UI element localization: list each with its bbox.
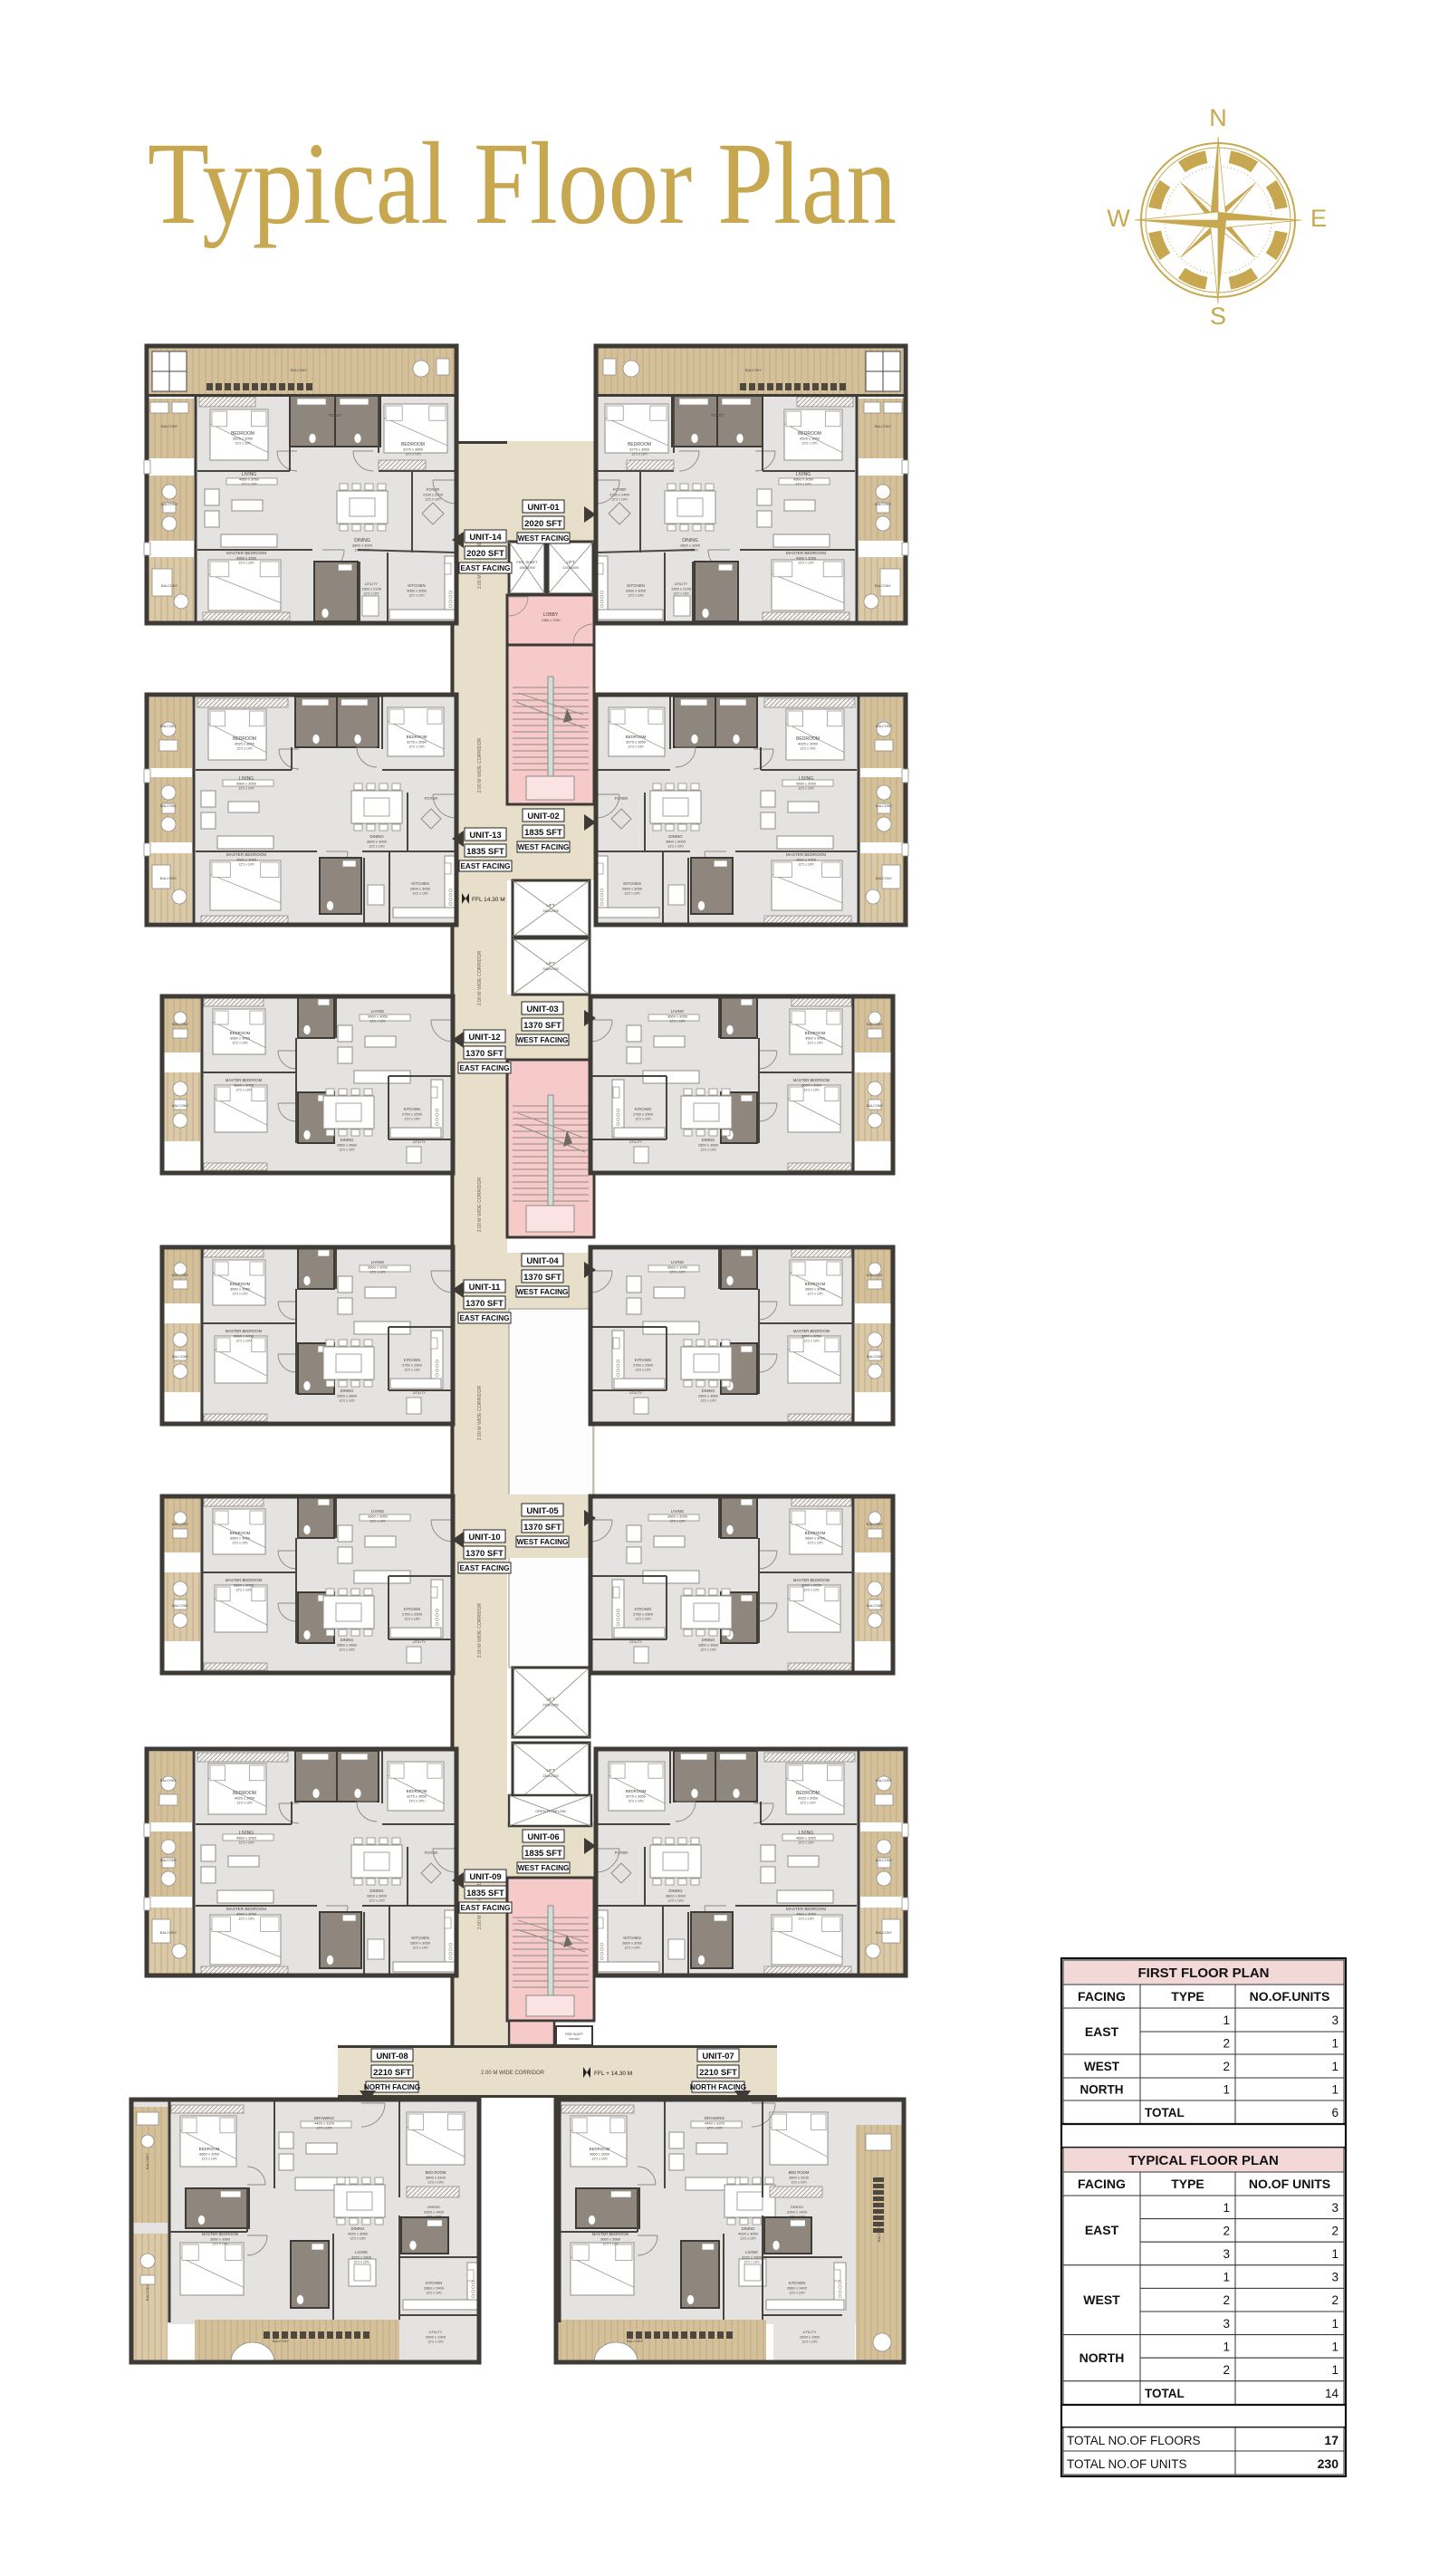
svg-text:TYPE: TYPE — [1171, 2177, 1204, 2191]
svg-text:12′2 x 10′0: 12′2 x 10′0 — [369, 1271, 385, 1274]
svg-text:12′2 x 10′0: 12′2 x 10′0 — [363, 592, 379, 596]
svg-text:KITCHEN: KITCHEN — [635, 1358, 651, 1362]
svg-text:UNIT-08: UNIT-08 — [376, 2052, 408, 2062]
svg-text:BALCONY: BALCONY — [160, 1859, 178, 1862]
svg-text:Typical Floor Plan: Typical Floor Plan — [148, 119, 897, 249]
svg-text:W: W — [1107, 205, 1130, 232]
svg-text:KITCHEN: KITCHEN — [404, 1358, 420, 1362]
svg-text:BEDROOM: BEDROOM — [407, 1789, 427, 1793]
svg-text:N: N — [1209, 104, 1227, 131]
svg-text:2190 x 2400: 2190 x 2400 — [423, 493, 444, 497]
svg-text:4025 x 3050: 4025 x 3050 — [235, 742, 255, 746]
svg-text:2300x2300: 2300x2300 — [542, 1704, 558, 1707]
svg-text:BEDROOM: BEDROOM — [230, 1531, 251, 1535]
svg-text:LIFT: LIFT — [566, 560, 575, 564]
svg-text:3220 x 2600: 3220 x 2600 — [351, 2255, 372, 2260]
svg-text:12′2 x 10′0: 12′2 x 10′0 — [744, 2261, 759, 2264]
svg-text:2020 SFT: 2020 SFT — [524, 519, 562, 529]
svg-text:FOYER: FOYER — [615, 1850, 628, 1855]
svg-text:4025 x 3050: 4025 x 3050 — [235, 1796, 255, 1801]
svg-text:12′2 x 10′0: 12′2 x 10′0 — [232, 1542, 247, 1545]
svg-text:12′2 x 10′0: 12′2 x 10′0 — [232, 1293, 247, 1296]
svg-text:BALCONY: BALCONY — [146, 2283, 149, 2301]
svg-text:LIFT: LIFT — [546, 961, 555, 966]
svg-text:12′2 x 10′0: 12′2 x 10′0 — [803, 1340, 819, 1343]
svg-text:BALCONY: BALCONY — [161, 425, 178, 428]
svg-text:WEST FACING: WEST FACING — [518, 843, 570, 851]
svg-text:12′2 x 10′0: 12′2 x 10′0 — [353, 2261, 369, 2264]
svg-text:1835 SFT: 1835 SFT — [466, 847, 504, 857]
svg-text:12′2 x 10′0: 12′2 x 10′0 — [591, 2158, 607, 2161]
svg-text:UNIT-14: UNIT-14 — [469, 533, 502, 543]
svg-text:12′2 x 10′0: 12′2 x 10′0 — [201, 2158, 216, 2161]
svg-text:12′2 x 10′0: 12′2 x 10′0 — [238, 863, 254, 867]
svg-text:12′2 x 10′0: 12′2 x 10′0 — [667, 1899, 683, 1903]
svg-text:3660 x 3050: 3660 x 3050 — [667, 1014, 688, 1019]
svg-text:MASTER BEDROOM: MASTER BEDROOM — [793, 1578, 830, 1582]
svg-text:12′2 x 10′0: 12′2 x 10′0 — [631, 453, 647, 457]
svg-text:12′2 x 10′0: 12′2 x 10′0 — [667, 845, 683, 849]
svg-text:4660 x 3050: 4660 x 3050 — [796, 1912, 817, 1917]
svg-text:KITCHEN: KITCHEN — [635, 1107, 651, 1111]
svg-text:UTILITY: UTILITY — [629, 1640, 643, 1644]
svg-text:4660 x 3050: 4660 x 3050 — [793, 477, 814, 482]
svg-text:MASTER BEDROOM: MASTER BEDROOM — [226, 852, 266, 857]
svg-text:FOYER: FOYER — [615, 796, 628, 801]
svg-text:BALCONY: BALCONY — [172, 1355, 189, 1359]
svg-text:KITCHEN: KITCHEN — [789, 2281, 805, 2285]
svg-text:NORTH FACING: NORTH FACING — [364, 2083, 420, 2091]
svg-text:12′2 x 10′0: 12′2 x 10′0 — [801, 2341, 817, 2344]
svg-text:MASTER BEDROOM: MASTER BEDROOM — [786, 551, 826, 555]
svg-text:12′2 x 10′0: 12′2 x 10′0 — [800, 1802, 815, 1805]
svg-text:12′2 x 10′0: 12′2 x 10′0 — [235, 1089, 251, 1092]
svg-text:2800 x 3050: 2800 x 3050 — [410, 1941, 431, 1946]
svg-text:1300 x 2145: 1300 x 2145 — [361, 587, 382, 591]
svg-text:3800 x 3000: 3800 x 3000 — [666, 1894, 686, 1898]
svg-text:UTILITY: UTILITY — [413, 1391, 427, 1395]
svg-text:12′2 x 10′0: 12′2 x 10′0 — [798, 1841, 813, 1845]
svg-text:12′2 x 10′0: 12′2 x 10′0 — [404, 1618, 419, 1621]
svg-text:OPEN TO BELOW: OPEN TO BELOW — [535, 1809, 566, 1813]
svg-text:3660 x 3050: 3660 x 3050 — [234, 1334, 254, 1339]
svg-text:2750 x 2500: 2750 x 2500 — [402, 1612, 423, 1617]
svg-text:WEST FACING: WEST FACING — [518, 534, 570, 543]
svg-text:12′2 x 10′0: 12′2 x 10′0 — [404, 1118, 419, 1121]
svg-text:4660 x 3050: 4660 x 3050 — [796, 1836, 817, 1841]
svg-text:4660 x 3050: 4660 x 3050 — [236, 858, 257, 862]
svg-text:12′2 x 10′0: 12′2 x 10′0 — [700, 1399, 715, 1403]
svg-text:12′2 x 10′0: 12′2 x 10′0 — [635, 1618, 650, 1621]
svg-text:12′2 x 10′0: 12′2 x 10′0 — [628, 1800, 643, 1803]
svg-text:BALCONY: BALCONY — [867, 1523, 884, 1526]
svg-text:2300 x 1400: 2300 x 1400 — [787, 2210, 808, 2215]
svg-text:UTILITY: UTILITY — [413, 1640, 427, 1644]
svg-text:UTILITY: UTILITY — [429, 2330, 443, 2334]
svg-text:FOYER: FOYER — [425, 1850, 437, 1855]
svg-text:BEDROOM: BEDROOM — [626, 1789, 647, 1793]
svg-text:BALCONY: BALCONY — [172, 1023, 189, 1026]
svg-text:12′2 x 10′0: 12′2 x 10′0 — [369, 1899, 384, 1903]
svg-text:4460 x 3200: 4460 x 3200 — [314, 2121, 335, 2126]
svg-text:3660 x 3050: 3660 x 3050 — [368, 1265, 389, 1270]
svg-text:BALCONY: BALCONY — [875, 425, 892, 428]
svg-text:2800 x 3050: 2800 x 3050 — [410, 887, 431, 891]
svg-text:DRESS: DRESS — [427, 2205, 440, 2209]
svg-text:17: 17 — [1324, 2433, 1339, 2447]
svg-text:1: 1 — [1331, 2317, 1339, 2331]
svg-text:BALCONY: BALCONY — [172, 1604, 189, 1608]
svg-text:12′2 x 10′0: 12′2 x 10′0 — [807, 1293, 822, 1296]
svg-text:WEST: WEST — [1084, 2060, 1120, 2073]
svg-text:BALCONY: BALCONY — [876, 1779, 893, 1783]
svg-text:3800 x 3000: 3800 x 3000 — [680, 543, 701, 548]
svg-text:12′2 x 10′0: 12′2 x 10′0 — [235, 1589, 251, 1592]
svg-text:WEST FACING: WEST FACING — [517, 1538, 569, 1546]
svg-text:FFL + 14.30 M: FFL + 14.30 M — [594, 2071, 632, 2077]
svg-text:12′2 x 10′0: 12′2 x 10′0 — [232, 1042, 247, 1045]
svg-text:12′2 x 10′0: 12′2 x 10′0 — [669, 1271, 685, 1274]
svg-text:12′2 x 10′0: 12′2 x 10′0 — [238, 1918, 254, 1921]
svg-text:12′2 x 10′0: 12′2 x 10′0 — [339, 1648, 354, 1652]
svg-text:12′2 x 10′0: 12′2 x 10′0 — [369, 1020, 385, 1024]
svg-text:KITCHEN: KITCHEN — [411, 881, 428, 886]
svg-text:MASTER BEDROOM: MASTER BEDROOM — [786, 852, 826, 857]
svg-text:1: 1 — [1331, 2083, 1339, 2097]
svg-text:4525 x 3050: 4525 x 3050 — [800, 437, 820, 441]
svg-text:12′2 x 10′0: 12′2 x 10′0 — [807, 1542, 822, 1545]
svg-text:3060 x 3050: 3060 x 3050 — [407, 589, 427, 593]
svg-text:3660 x 3050: 3660 x 3050 — [801, 1083, 822, 1088]
svg-text:2210 SFT: 2210 SFT — [373, 2068, 411, 2078]
svg-text:TOILET: TOILET — [711, 413, 724, 418]
svg-text:2: 2 — [1223, 2037, 1230, 2051]
svg-text:12′2 x 10′0: 12′2 x 10′0 — [706, 2127, 722, 2130]
svg-text:12′2 x 10′0: 12′2 x 10′0 — [212, 2243, 227, 2246]
svg-text:BED ROOM: BED ROOM — [789, 2170, 810, 2175]
svg-text:1: 1 — [1223, 2014, 1230, 2027]
svg-text:2.00 M WIDE CORRIDOR: 2.00 M WIDE CORRIDOR — [481, 2071, 545, 2076]
svg-text:2020 SFT: 2020 SFT — [466, 549, 504, 559]
svg-text:3600 x 3100: 3600 x 3100 — [426, 2176, 446, 2180]
svg-text:UNIT-10: UNIT-10 — [468, 1533, 500, 1543]
svg-text:WEST: WEST — [1083, 2292, 1120, 2307]
svg-text:BALCONY: BALCONY — [875, 584, 892, 588]
svg-text:1370 SFT: 1370 SFT — [465, 1549, 504, 1559]
svg-text:UTILITY: UTILITY — [803, 2330, 817, 2334]
svg-text:12′2 x 10′0: 12′2 x 10′0 — [602, 2243, 618, 2246]
svg-text:3800 x 3000: 3800 x 3000 — [367, 1894, 388, 1898]
svg-text:2600 x 1900: 2600 x 1900 — [426, 2335, 446, 2340]
svg-text:2850 x 3660: 2850 x 3660 — [698, 1143, 719, 1148]
svg-text:12′2 x 10′0: 12′2 x 10′0 — [427, 2181, 443, 2185]
svg-text:UTILITY: UTILITY — [365, 582, 379, 586]
svg-text:230: 230 — [1318, 2456, 1339, 2471]
svg-text:MASTER BEDROOM: MASTER BEDROOM — [793, 1329, 830, 1333]
svg-text:BEDROOM: BEDROOM — [805, 1282, 826, 1286]
svg-text:12′2 x 10′0: 12′2 x 10′0 — [412, 892, 427, 896]
svg-text:LIVING: LIVING — [371, 1509, 385, 1514]
svg-text:BALCONY: BALCONY — [172, 1274, 189, 1277]
svg-text:12′2 x 10′0: 12′2 x 10′0 — [791, 2181, 806, 2185]
svg-text:12′2 x 10′0: 12′2 x 10′0 — [800, 747, 815, 751]
svg-text:BEDROOM: BEDROOM — [626, 735, 647, 739]
svg-text:NO.OF UNITS: NO.OF UNITS — [1249, 2177, 1330, 2191]
svg-text:4025 x 3050: 4025 x 3050 — [798, 1796, 819, 1801]
svg-text:3275 x 3650: 3275 x 3650 — [407, 740, 427, 745]
svg-text:1: 1 — [1223, 2083, 1230, 2097]
svg-text:FFL 14.30 M: FFL 14.30 M — [472, 897, 505, 903]
svg-text:2: 2 — [1331, 2293, 1339, 2307]
svg-text:4660 x 3050: 4660 x 3050 — [236, 1912, 257, 1917]
svg-text:4960 x 3050: 4960 x 3050 — [236, 556, 257, 561]
svg-text:UNIT-04: UNIT-04 — [526, 1256, 559, 1266]
svg-text:WEST FACING: WEST FACING — [517, 1288, 569, 1296]
svg-text:FOYER: FOYER — [427, 487, 439, 492]
svg-text:12′2 x 10′0: 12′2 x 10′0 — [408, 1800, 424, 1803]
svg-text:BALCONY: BALCONY — [172, 1523, 189, 1526]
svg-text:12′2 x 10′0: 12′2 x 10′0 — [235, 442, 250, 446]
svg-text:BALCONY: BALCONY — [876, 804, 893, 808]
svg-text:2: 2 — [1331, 2224, 1339, 2237]
svg-text:UTILITY: UTILITY — [675, 582, 688, 586]
svg-text:BALCONY: BALCONY — [867, 1274, 884, 1277]
svg-text:BALCONY: BALCONY — [160, 877, 178, 880]
svg-text:12′2 x 10′0: 12′2 x 10′0 — [339, 1399, 354, 1403]
svg-text:1300 x 2145: 1300 x 2145 — [671, 587, 692, 591]
svg-text:2860 x 2400: 2860 x 2400 — [424, 2286, 445, 2291]
svg-text:4960 x 3050: 4960 x 3050 — [796, 556, 817, 561]
svg-text:MASTER BEDROOM: MASTER BEDROOM — [793, 1078, 830, 1082]
svg-text:2300x2300: 2300x2300 — [542, 967, 558, 971]
svg-text:12′2 x 10′0: 12′2 x 10′0 — [798, 562, 813, 565]
svg-text:FACING: FACING — [1078, 2177, 1126, 2191]
svg-text:3: 3 — [1223, 2247, 1230, 2261]
svg-text:12′2 x 10′0: 12′2 x 10′0 — [624, 892, 639, 896]
svg-text:WEST FACING: WEST FACING — [518, 1864, 570, 1872]
svg-text:3660 x 3660: 3660 x 3660 — [600, 2237, 621, 2242]
svg-text:500x900: 500x900 — [569, 2037, 580, 2041]
svg-text:1: 1 — [1331, 2340, 1339, 2353]
svg-text:LIVING: LIVING — [671, 1509, 685, 1514]
svg-text:4660 x 3050: 4660 x 3050 — [796, 782, 817, 786]
svg-text:2850 x 3660: 2850 x 3660 — [698, 1394, 719, 1399]
svg-text:TOTAL: TOTAL — [1145, 2106, 1185, 2119]
svg-text:TOTAL: TOTAL — [1145, 2387, 1185, 2400]
svg-text:3800 x 3000: 3800 x 3000 — [666, 840, 686, 844]
svg-text:12′2 x 10′0: 12′2 x 10′0 — [740, 2237, 755, 2241]
svg-text:2.00 M WIDE CORRIDOR: 2.00 M WIDE CORRIDOR — [477, 737, 483, 793]
svg-text:12′2 x 10′0: 12′2 x 10′0 — [238, 562, 254, 565]
svg-text:2850 x 3660: 2850 x 3660 — [337, 1394, 358, 1399]
svg-text:2300x2300: 2300x2300 — [542, 909, 558, 913]
svg-text:FRS. SHAFT: FRS. SHAFT — [516, 560, 538, 564]
svg-text:2750 x 2500: 2750 x 2500 — [633, 1363, 654, 1368]
svg-text:BEDROOM: BEDROOM — [805, 1031, 826, 1035]
svg-text:LIVING: LIVING — [355, 2250, 368, 2254]
svg-text:2: 2 — [1223, 2363, 1230, 2377]
svg-text:UNIT-01: UNIT-01 — [527, 503, 560, 513]
svg-text:BALCONY: BALCONY — [160, 725, 178, 728]
svg-text:UTILITY: UTILITY — [629, 1140, 643, 1144]
svg-text:3660 x 3050: 3660 x 3050 — [234, 1583, 254, 1588]
svg-text:BALCONY: BALCONY — [867, 1023, 884, 1026]
svg-text:2850 x 3660: 2850 x 3660 — [698, 1643, 719, 1648]
svg-text:1: 1 — [1331, 2060, 1339, 2073]
svg-text:3600 x 3100: 3600 x 3100 — [789, 2176, 810, 2180]
svg-text:UNIT-12: UNIT-12 — [468, 1033, 500, 1043]
svg-text:12′2 x 10′0: 12′2 x 10′0 — [350, 2237, 365, 2241]
svg-text:4460 x 3200: 4460 x 3200 — [705, 2121, 725, 2126]
svg-text:BALCONY: BALCONY — [160, 1779, 178, 1783]
svg-text:BED ROOM: BED ROOM — [426, 2170, 446, 2175]
svg-text:EAST FACING: EAST FACING — [459, 1064, 509, 1072]
svg-text:KITCHEN: KITCHEN — [411, 1936, 428, 1940]
svg-text:UTILITY: UTILITY — [413, 1140, 427, 1144]
svg-text:2750 x 2500: 2750 x 2500 — [633, 1112, 654, 1117]
svg-text:4660 x 3050: 4660 x 3050 — [239, 477, 260, 482]
svg-text:EAST FACING: EAST FACING — [460, 862, 510, 870]
svg-text:2300x2300: 2300x2300 — [542, 1774, 558, 1778]
svg-text:12′2 x 10′0: 12′2 x 10′0 — [628, 745, 643, 749]
svg-text:12′2 x 10′0: 12′2 x 10′0 — [238, 787, 254, 791]
svg-text:NO.OF.UNITS: NO.OF.UNITS — [1250, 1989, 1330, 2004]
svg-text:1000x1900: 1000x1900 — [519, 566, 534, 570]
svg-text:KITCHEN: KITCHEN — [404, 1607, 420, 1611]
svg-text:LIVING: LIVING — [671, 1260, 685, 1264]
svg-text:3: 3 — [1223, 2317, 1230, 2331]
svg-text:4660 x 3050: 4660 x 3050 — [236, 1836, 257, 1841]
svg-text:DINING: DINING — [341, 1138, 354, 1142]
svg-text:FIRST FLOOR PLAN: FIRST FLOOR PLAN — [1138, 1966, 1270, 1981]
svg-text:BALCONY: BALCONY — [876, 1859, 893, 1862]
svg-text:DINING: DINING — [702, 1138, 715, 1142]
svg-text:3660 x 3050: 3660 x 3050 — [234, 1083, 254, 1088]
svg-text:12′2 x 10′0: 12′2 x 10′0 — [803, 1589, 819, 1592]
svg-text:DINING: DINING — [341, 1389, 354, 1393]
svg-text:LIVING: LIVING — [671, 1009, 685, 1014]
svg-text:DINING: DINING — [351, 2226, 365, 2231]
svg-text:LIVING: LIVING — [371, 1260, 385, 1264]
svg-text:EAST FACING: EAST FACING — [459, 1314, 509, 1322]
svg-text:FIRE SHAFT: FIRE SHAFT — [565, 2033, 583, 2036]
svg-text:MASTER BEDROOM: MASTER BEDROOM — [226, 1329, 263, 1333]
svg-text:BALCONY: BALCONY — [160, 804, 178, 808]
svg-text:UNIT-02: UNIT-02 — [527, 812, 559, 822]
svg-text:TYPICAL FLOOR PLAN: TYPICAL FLOOR PLAN — [1128, 2153, 1279, 2168]
svg-text:1: 1 — [1223, 2201, 1230, 2215]
svg-text:3800 x 3000: 3800 x 3000 — [352, 543, 373, 548]
svg-text:TOTAL NO.OF FLOORS: TOTAL NO.OF FLOORS — [1067, 2434, 1201, 2447]
svg-text:1835 SFT: 1835 SFT — [466, 1889, 504, 1898]
svg-text:3660 x 3050: 3660 x 3050 — [199, 2152, 220, 2157]
svg-text:12′2 x 10′0: 12′2 x 10′0 — [369, 845, 384, 849]
svg-text:12′2 x 10′0: 12′2 x 10′0 — [798, 863, 813, 867]
svg-text:1370 SFT: 1370 SFT — [465, 1299, 504, 1309]
svg-text:LIFT: LIFT — [546, 1768, 555, 1773]
svg-text:2.00 M WIDE CORRIDOR: 2.00 M WIDE CORRIDOR — [477, 1177, 483, 1232]
svg-text:12′2 x 10′0: 12′2 x 10′0 — [404, 1369, 419, 1372]
svg-text:2210 SFT: 2210 SFT — [699, 2068, 737, 2078]
svg-text:BEDROOM: BEDROOM — [407, 735, 427, 739]
svg-text:3800 x 3000: 3800 x 3000 — [367, 840, 388, 844]
svg-text:1: 1 — [1223, 2340, 1230, 2353]
svg-text:4525 x 3050: 4525 x 3050 — [233, 437, 254, 441]
svg-text:2100x1900: 2100x1900 — [562, 566, 578, 570]
svg-text:1370 SFT: 1370 SFT — [465, 1049, 504, 1059]
svg-text:E: E — [1310, 205, 1327, 232]
svg-text:BALCONY: BALCONY — [160, 1931, 178, 1935]
svg-text:LIFT: LIFT — [546, 1697, 555, 1702]
svg-text:BALCONY: BALCONY — [876, 877, 893, 880]
svg-text:12′2 x 10′0: 12′2 x 10′0 — [369, 1520, 385, 1523]
svg-text:12′2 x 10′0: 12′2 x 10′0 — [669, 1020, 685, 1024]
svg-text:BALCONY: BALCONY — [745, 369, 763, 372]
svg-text:14: 14 — [1325, 2387, 1339, 2400]
svg-text:3275 x 3650: 3275 x 3650 — [629, 447, 650, 452]
svg-text:3660 x 3050: 3660 x 3050 — [368, 1514, 389, 1519]
svg-text:BALCONY: BALCONY — [875, 503, 892, 506]
svg-text:BALCONY: BALCONY — [867, 1104, 884, 1108]
svg-text:2: 2 — [1223, 2224, 1230, 2237]
svg-text:3660 x 3660: 3660 x 3660 — [210, 2237, 231, 2242]
svg-text:2750 x 2500: 2750 x 2500 — [402, 1363, 423, 1368]
svg-text:2850 x 3660: 2850 x 3660 — [337, 1143, 358, 1148]
svg-text:UNIT-06: UNIT-06 — [527, 1832, 559, 1842]
svg-text:DRAWING: DRAWING — [314, 2116, 334, 2120]
svg-text:KITCHEN: KITCHEN — [408, 583, 425, 588]
svg-text:2: 2 — [1223, 2060, 1230, 2073]
svg-text:NORTH FACING: NORTH FACING — [690, 2083, 746, 2091]
svg-text:EAST FACING: EAST FACING — [460, 1904, 510, 1912]
svg-text:UNIT-05: UNIT-05 — [526, 1506, 559, 1516]
svg-text:2800 x 3050: 2800 x 3050 — [622, 1941, 643, 1946]
svg-text:KITCHEN: KITCHEN — [627, 583, 644, 588]
svg-text:4020 x 3050: 4020 x 3050 — [738, 2232, 759, 2236]
svg-text:LIFT: LIFT — [546, 903, 555, 908]
svg-text:KITCHEN: KITCHEN — [623, 881, 640, 886]
svg-text:KITCHEN: KITCHEN — [404, 1107, 420, 1111]
svg-text:3660 x 3050: 3660 x 3050 — [230, 1036, 251, 1041]
svg-text:BALCONY: BALCONY — [172, 1104, 189, 1108]
svg-text:EAST: EAST — [1085, 2024, 1119, 2039]
svg-text:BEDROOM: BEDROOM — [230, 1031, 251, 1035]
svg-text:BALCONY: BALCONY — [161, 503, 178, 506]
svg-text:2600 x 1900: 2600 x 1900 — [800, 2335, 820, 2340]
svg-text:12′2 x 10′0: 12′2 x 10′0 — [700, 1648, 715, 1652]
svg-text:12′2 x 10′0: 12′2 x 10′0 — [803, 1089, 819, 1092]
svg-text:12′2 x 10′0: 12′2 x 10′0 — [408, 594, 424, 598]
svg-text:12′2 x 10′0: 12′2 x 10′0 — [669, 1520, 685, 1523]
svg-text:BALCONY: BALCONY — [867, 1604, 884, 1608]
svg-text:BALCONY: BALCONY — [867, 1355, 884, 1359]
svg-text:3: 3 — [1331, 2271, 1339, 2284]
svg-text:3660 x 3050: 3660 x 3050 — [805, 1036, 826, 1041]
svg-text:2860 x 2400: 2860 x 2400 — [787, 2286, 808, 2291]
svg-text:6: 6 — [1331, 2106, 1339, 2119]
svg-text:12′2 x 10′0: 12′2 x 10′0 — [426, 2292, 441, 2295]
svg-text:3: 3 — [1331, 2014, 1339, 2027]
svg-text:1835 SFT: 1835 SFT — [524, 1849, 562, 1859]
svg-text:12′2 x 10′0: 12′2 x 10′0 — [408, 745, 424, 749]
svg-text:DRAWING: DRAWING — [705, 2116, 724, 2120]
svg-text:1: 1 — [1331, 2037, 1339, 2051]
svg-text:UNIT-09: UNIT-09 — [469, 1872, 501, 1882]
svg-text:BEDROOM: BEDROOM — [805, 1531, 826, 1535]
svg-text:NORTH: NORTH — [1080, 2350, 1125, 2365]
svg-text:12′2 x 10′0: 12′2 x 10′0 — [405, 453, 420, 457]
svg-text:3275 x 3650: 3275 x 3650 — [626, 1794, 647, 1799]
